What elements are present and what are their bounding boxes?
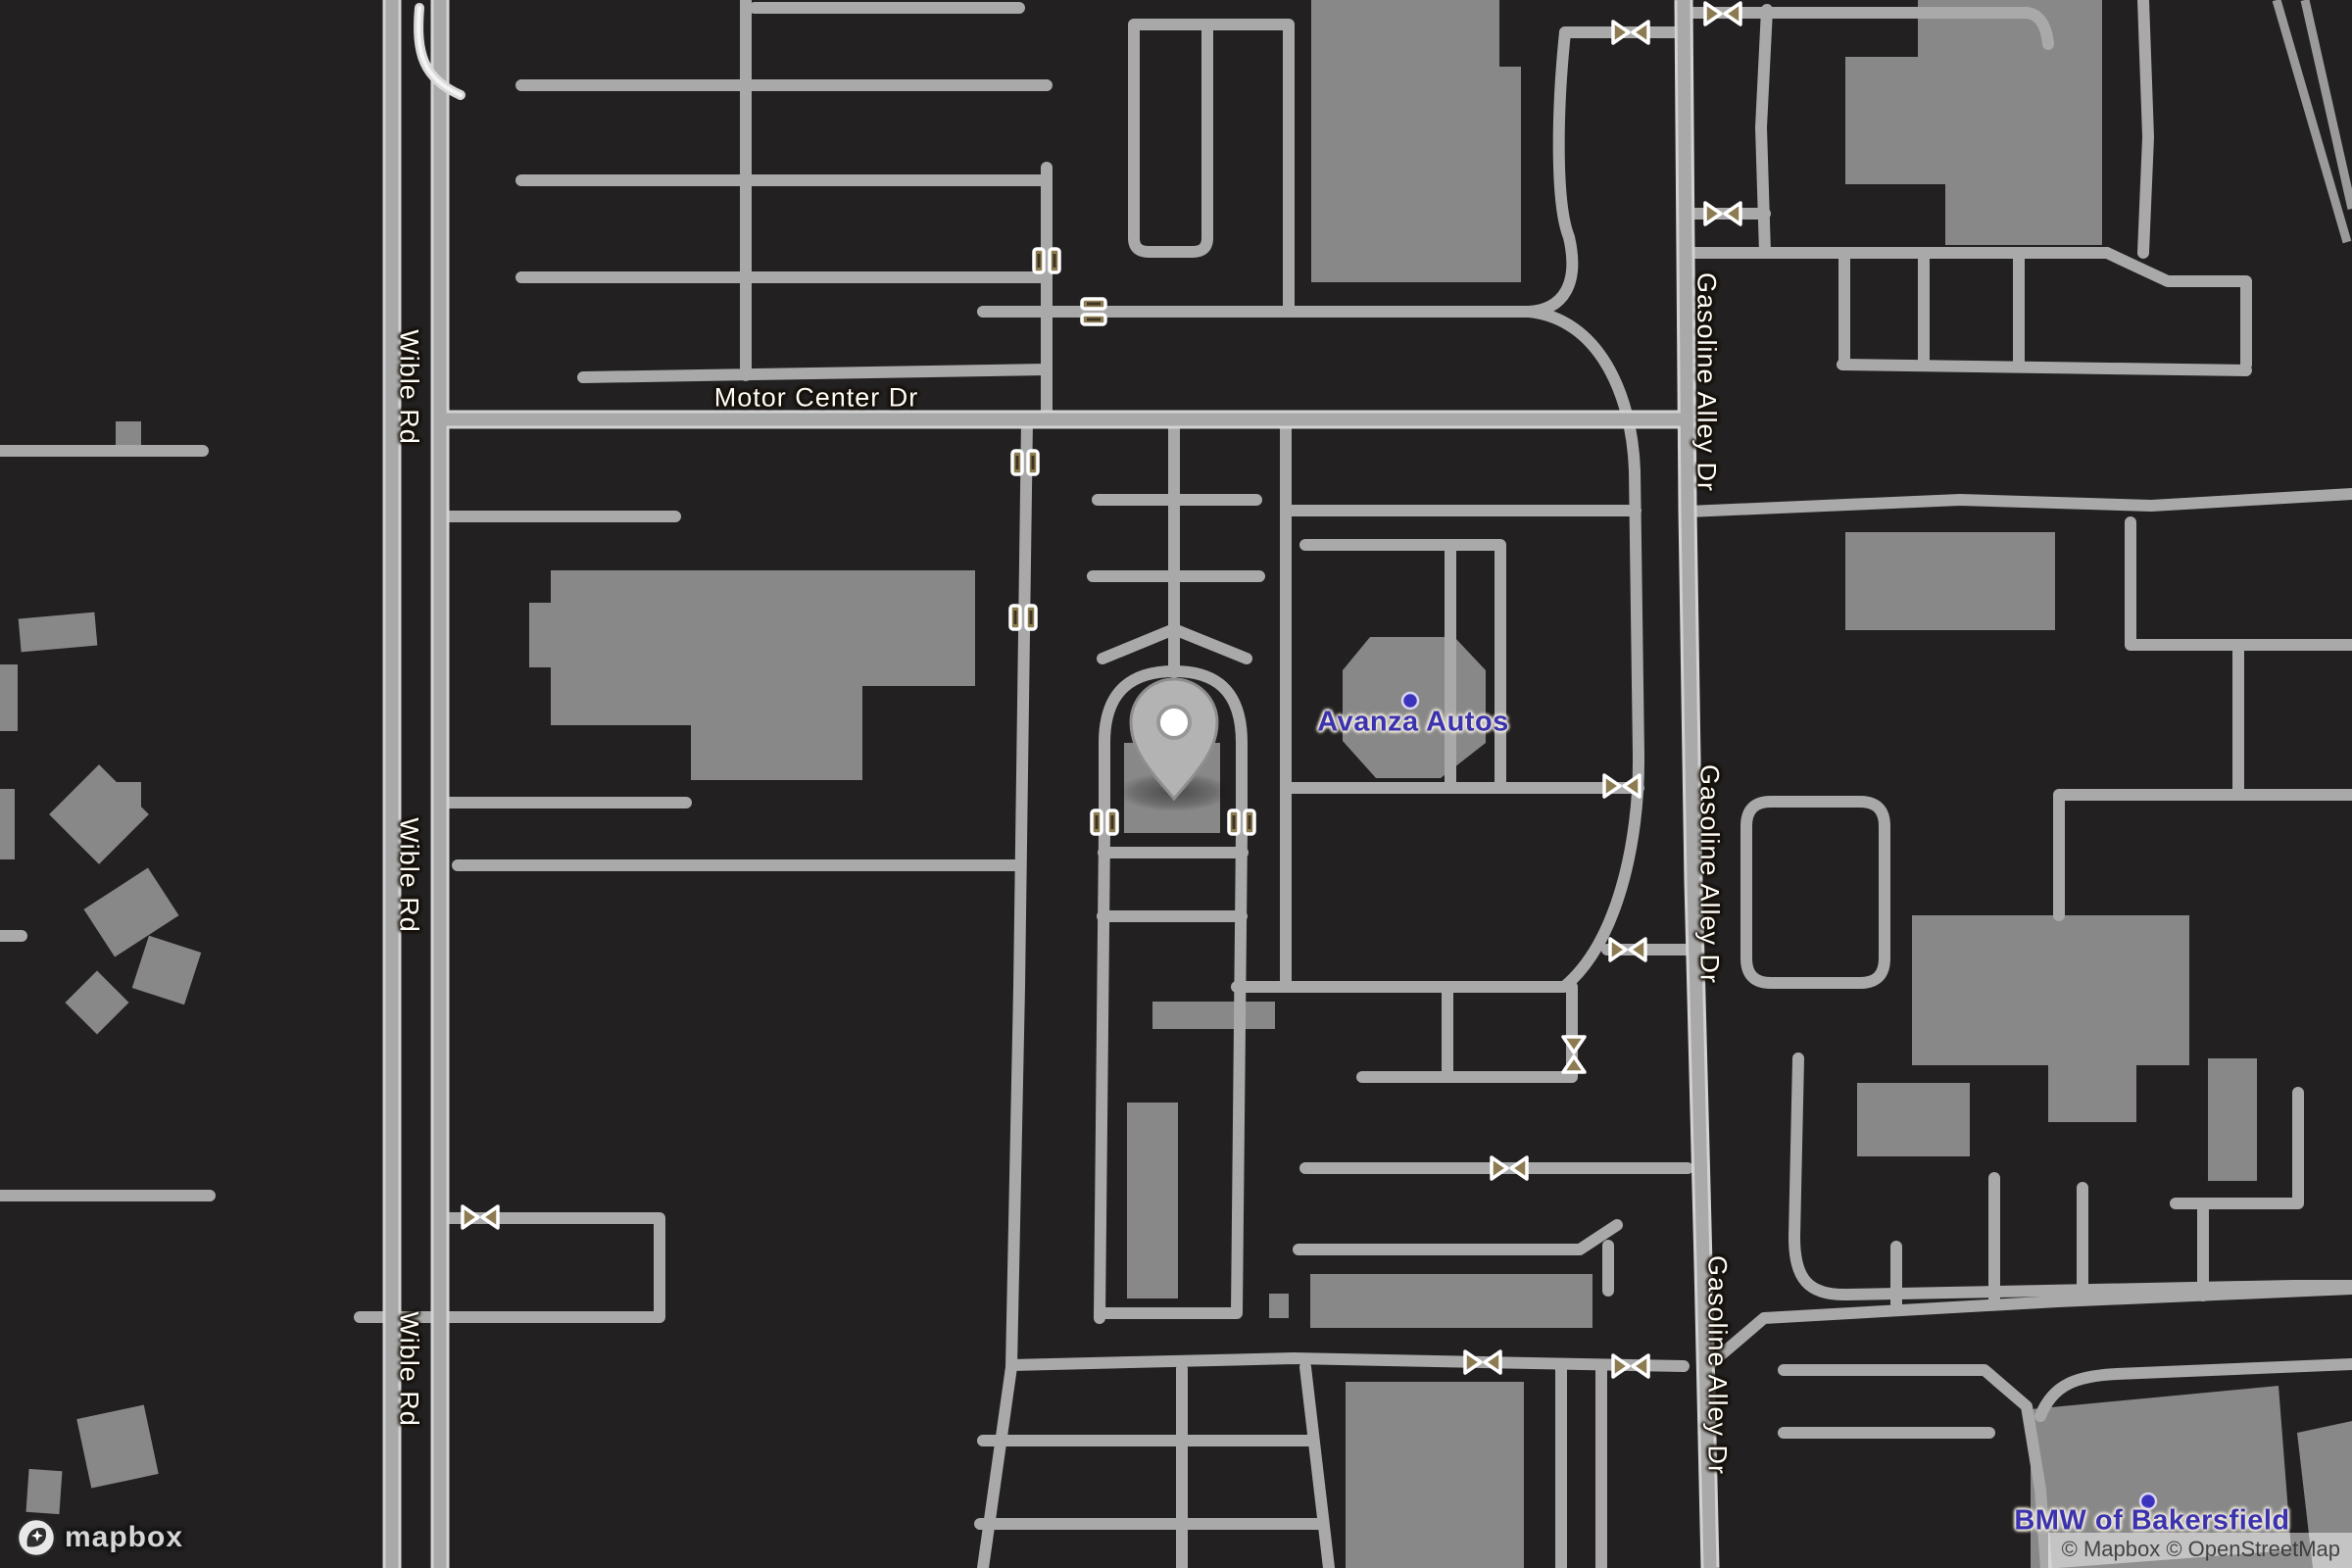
location-pin-marker[interactable] <box>1117 679 1231 811</box>
mapbox-wordmark: mapbox <box>65 1521 183 1554</box>
road-label-wible-rd-2: Wible Rd <box>394 817 424 933</box>
mapbox-logo-icon <box>16 1517 57 1558</box>
highway <box>2277 0 2352 242</box>
poi-label-avanza-autos: Avanza Autos <box>1317 707 1509 739</box>
road-label-motor-center-dr: Motor Center Dr <box>714 383 919 414</box>
road-label-gasoline-alley-dr-2: Gasoline Alley Dr <box>1694 764 1725 984</box>
map-container: Wible Rd Wible Rd Wible Rd Motor Center … <box>0 0 2352 1568</box>
road-label-gasoline-alley-dr-1: Gasoline Alley Dr <box>1691 272 1722 492</box>
road-label-wible-rd-1: Wible Rd <box>394 329 424 445</box>
attribution-osm-link[interactable]: © OpenStreetMap <box>2166 1537 2340 1561</box>
attribution: © Mapbox © OpenStreetMap <box>2048 1533 2352 1568</box>
pin-dot <box>1158 707 1190 738</box>
map-canvas[interactable] <box>0 0 2352 1568</box>
attribution-mapbox-link[interactable]: © Mapbox <box>2062 1537 2161 1561</box>
road-label-wible-rd-3: Wible Rd <box>394 1311 424 1427</box>
mapbox-logo[interactable]: mapbox <box>16 1517 183 1558</box>
road-label-gasoline-alley-dr-3: Gasoline Alley Dr <box>1702 1255 1733 1475</box>
